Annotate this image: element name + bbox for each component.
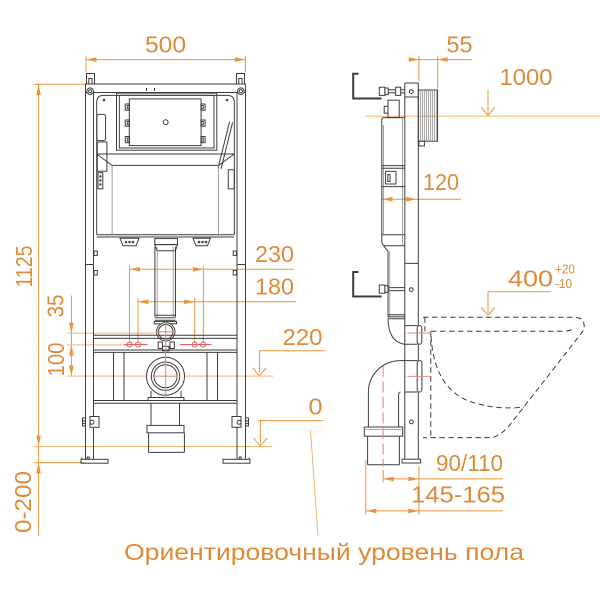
svg-text:55: 55 xyxy=(447,32,473,58)
svg-text:1125: 1125 xyxy=(11,246,37,288)
svg-text:Ориентировочный уровень пола: Ориентировочный уровень пола xyxy=(124,539,524,565)
svg-text:400: 400 xyxy=(508,266,553,292)
svg-text:35: 35 xyxy=(43,295,69,318)
svg-text:220: 220 xyxy=(283,324,323,350)
svg-text:145-165: 145-165 xyxy=(411,482,505,508)
svg-text:-10: -10 xyxy=(555,276,572,291)
svg-text:230: 230 xyxy=(255,241,294,267)
svg-text:100: 100 xyxy=(43,343,69,377)
svg-text:500: 500 xyxy=(145,32,186,58)
svg-text:120: 120 xyxy=(423,169,459,195)
svg-text:1000: 1000 xyxy=(500,64,553,90)
svg-text:+20: +20 xyxy=(555,262,575,277)
svg-text:90/110: 90/110 xyxy=(436,450,503,476)
svg-text:0: 0 xyxy=(309,394,323,420)
svg-text:180: 180 xyxy=(255,274,294,300)
svg-text:0-200: 0-200 xyxy=(10,471,36,533)
